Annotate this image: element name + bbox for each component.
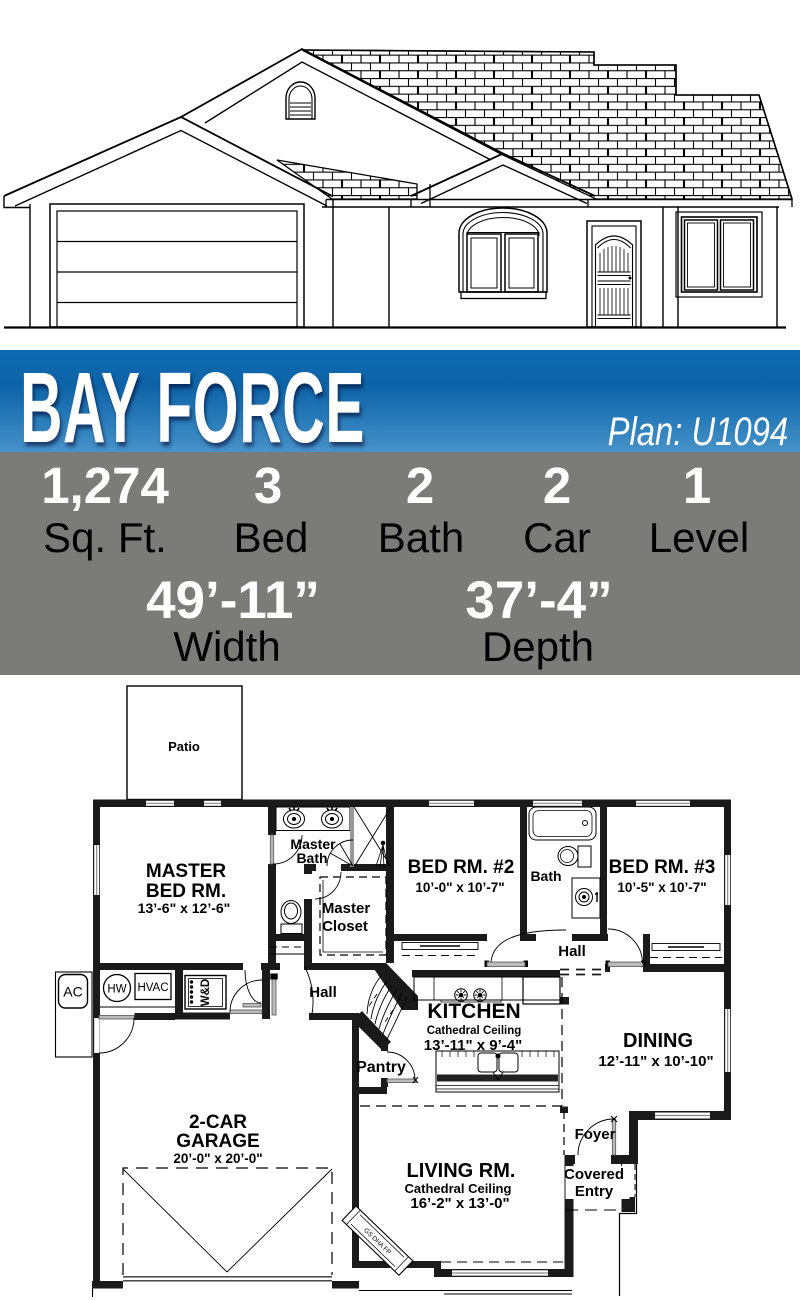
svg-text:BED RM.: BED RM. — [146, 881, 226, 902]
svg-text:Bath: Bath — [530, 868, 561, 884]
svg-text:W&D: W&D — [200, 979, 212, 1006]
svg-text:10’-0" x 10’-7": 10’-0" x 10’-7" — [415, 880, 504, 895]
svg-text:Entry: Entry — [575, 1183, 614, 1200]
svg-text:Cathedral Ceiling: Cathedral Ceiling — [427, 1025, 522, 1037]
svg-text:Pantry: Pantry — [356, 1059, 406, 1076]
svg-text:Hall: Hall — [558, 943, 586, 960]
svg-text:HW: HW — [107, 984, 126, 996]
svg-text:20’-0" x 20’-0": 20’-0" x 20’-0" — [173, 1151, 262, 1166]
svg-text:BED RM. #2: BED RM. #2 — [408, 857, 515, 878]
svg-text:Patio: Patio — [168, 739, 200, 754]
svg-text:BED RM. #3: BED RM. #3 — [609, 857, 716, 878]
svg-text:13’-11" x 9’-4": 13’-11" x 9’-4" — [424, 1037, 522, 1054]
svg-text:MASTER: MASTER — [146, 861, 227, 882]
svg-text:Bath: Bath — [296, 850, 327, 866]
svg-text:12’-11" x 10’-10": 12’-11" x 10’-10" — [598, 1053, 713, 1070]
svg-text:2-CAR: 2-CAR — [189, 1112, 247, 1133]
svg-text:KITCHEN: KITCHEN — [427, 1000, 520, 1023]
svg-text:10’-5" x 10’-7": 10’-5" x 10’-7" — [617, 880, 706, 895]
svg-text:Master: Master — [322, 900, 371, 917]
svg-text:Foyer: Foyer — [575, 1126, 616, 1143]
svg-text:Covered: Covered — [564, 1166, 624, 1183]
svg-text:Hall: Hall — [309, 984, 337, 1001]
svg-text:Closet: Closet — [322, 918, 368, 935]
svg-text:AC: AC — [63, 984, 82, 1000]
svg-text:HVAC: HVAC — [137, 982, 168, 994]
svg-text:16’-2" x 13’-0": 16’-2" x 13’-0" — [410, 1195, 509, 1212]
svg-text:Cathedral Ceiling: Cathedral Ceiling — [405, 1181, 512, 1196]
svg-text:DINING: DINING — [623, 1030, 693, 1052]
svg-text:13’-6" x 12’-6": 13’-6" x 12’-6" — [138, 900, 231, 916]
svg-text:LIVING RM.: LIVING RM. — [407, 1160, 516, 1182]
svg-text:GARAGE: GARAGE — [176, 1131, 259, 1152]
